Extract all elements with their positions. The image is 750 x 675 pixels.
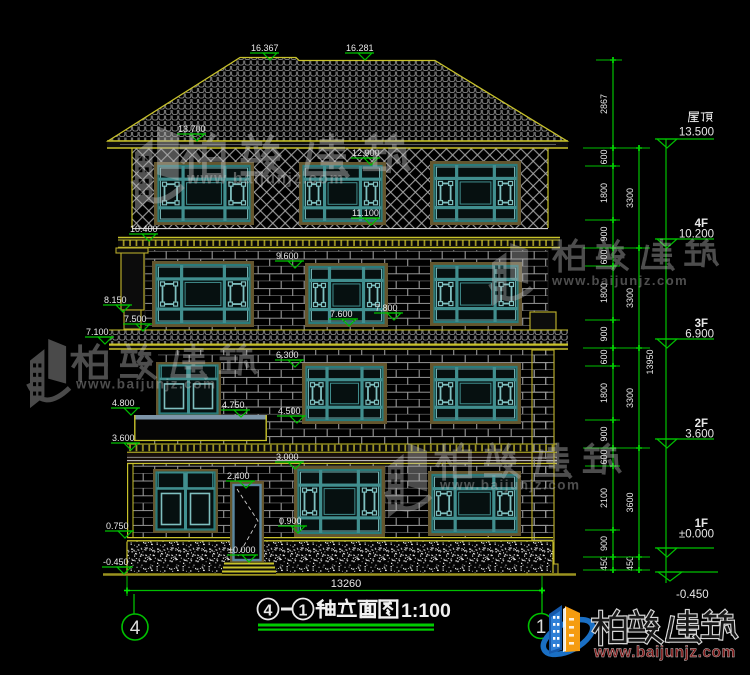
svg-text:16.281: 16.281	[346, 43, 374, 53]
svg-text:4: 4	[130, 618, 141, 639]
svg-text:10.400: 10.400	[130, 224, 158, 234]
svg-text:3.600: 3.600	[112, 433, 135, 443]
svg-text:www.baijunjz.com: www.baijunjz.com	[186, 171, 345, 188]
svg-text:3.000: 3.000	[276, 452, 299, 462]
svg-text:9.600: 9.600	[276, 251, 299, 261]
svg-text:4.500: 4.500	[278, 406, 301, 416]
svg-text:6.300: 6.300	[276, 350, 299, 360]
svg-text:±0.000: ±0.000	[228, 545, 255, 555]
svg-text:7.800: 7.800	[375, 303, 398, 313]
svg-text:1800: 1800	[599, 383, 609, 403]
svg-text:7.500: 7.500	[124, 314, 147, 324]
svg-text:4.750: 4.750	[222, 400, 245, 410]
svg-text:-0.450: -0.450	[676, 589, 709, 601]
svg-text:0.900: 0.900	[279, 516, 302, 526]
svg-text:3300: 3300	[625, 388, 635, 408]
svg-text:2867: 2867	[599, 94, 609, 114]
svg-text:2.400: 2.400	[227, 471, 250, 481]
svg-text:600: 600	[599, 149, 609, 164]
svg-text:0.750: 0.750	[106, 521, 129, 531]
svg-text:1: 1	[299, 603, 308, 620]
svg-text:13.500: 13.500	[679, 127, 714, 139]
svg-text:1: 1	[536, 617, 547, 638]
svg-text:8.150: 8.150	[104, 295, 127, 305]
svg-text:450: 450	[599, 556, 609, 571]
svg-text:13260: 13260	[331, 578, 362, 590]
svg-text:3300: 3300	[625, 188, 635, 208]
svg-text:900: 900	[599, 326, 609, 341]
svg-text:7.100: 7.100	[86, 327, 109, 337]
svg-text:450: 450	[625, 556, 635, 571]
svg-text:4.800: 4.800	[112, 398, 135, 408]
svg-text:3600: 3600	[625, 492, 635, 512]
svg-text:±0.000: ±0.000	[679, 529, 714, 541]
svg-text:13.700: 13.700	[178, 124, 206, 134]
svg-text:www.baijunjz.com: www.baijunjz.com	[593, 644, 736, 661]
svg-text:1:100: 1:100	[401, 600, 451, 622]
svg-text:4: 4	[264, 603, 273, 620]
svg-text:1800: 1800	[599, 183, 609, 203]
svg-text:www.baijunjz.com: www.baijunjz.com	[551, 273, 688, 288]
svg-text:16.367: 16.367	[251, 43, 279, 53]
svg-text:13950: 13950	[645, 349, 655, 374]
svg-text:-0.450: -0.450	[103, 557, 129, 567]
svg-text:www.baijunjz.com: www.baijunjz.com	[439, 478, 581, 493]
svg-text:11.100: 11.100	[352, 208, 379, 218]
svg-text:2100: 2100	[599, 488, 609, 508]
svg-text:600: 600	[599, 349, 609, 364]
svg-text:900: 900	[599, 426, 609, 441]
svg-text:3300: 3300	[625, 288, 635, 308]
svg-text:7.600: 7.600	[330, 309, 353, 319]
svg-text:900: 900	[599, 536, 609, 551]
svg-text:www.baijunjz.com: www.baijunjz.com	[75, 377, 217, 392]
